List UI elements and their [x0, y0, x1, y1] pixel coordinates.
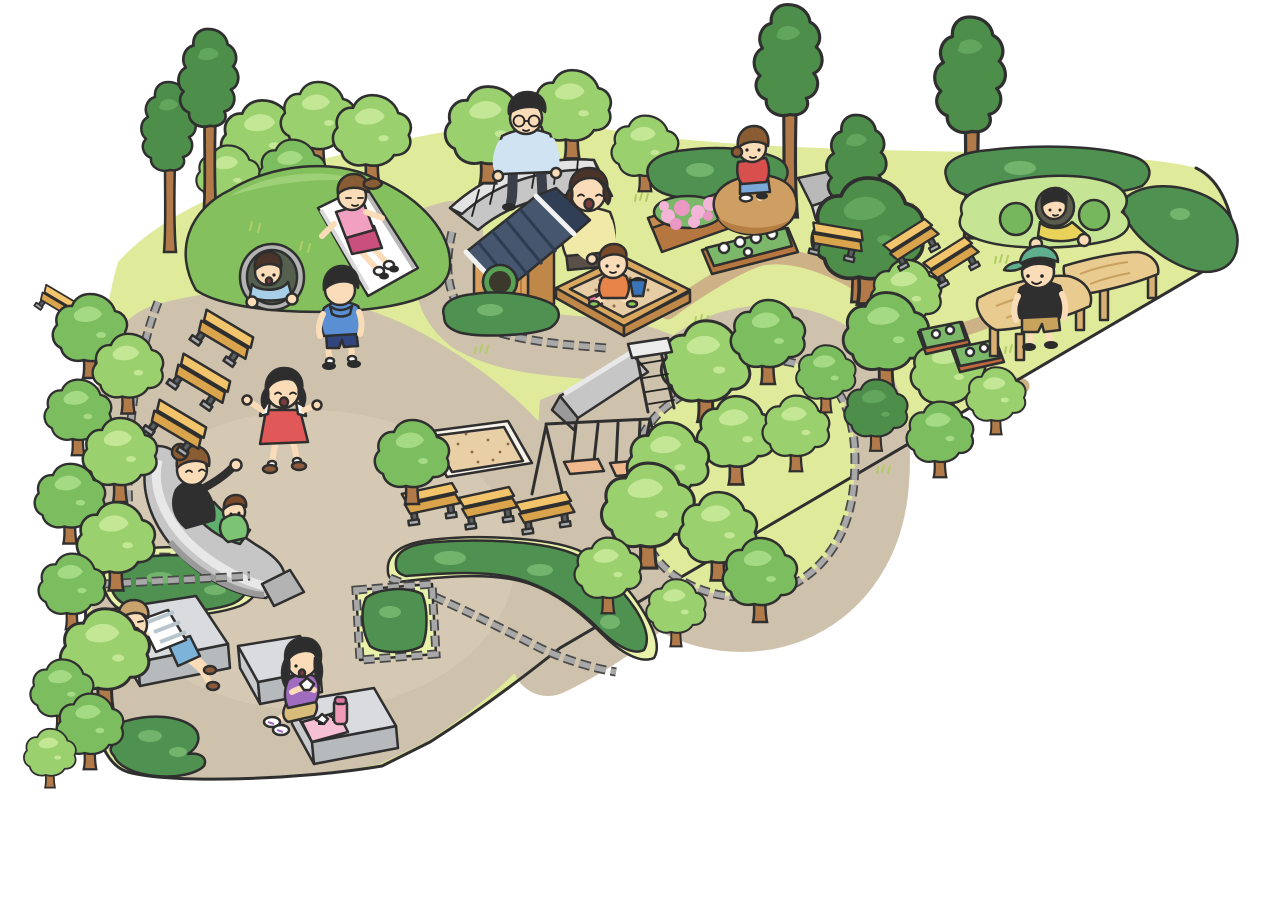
hedge-bed-small [356, 584, 436, 660]
hedge-by-playhouse [443, 292, 559, 335]
toddler-on-lap [220, 495, 248, 542]
park-illustration [0, 0, 1280, 905]
thermos [334, 697, 347, 724]
toy-bucket [630, 278, 646, 296]
tunnel [240, 244, 304, 310]
play-mound [960, 176, 1129, 250]
